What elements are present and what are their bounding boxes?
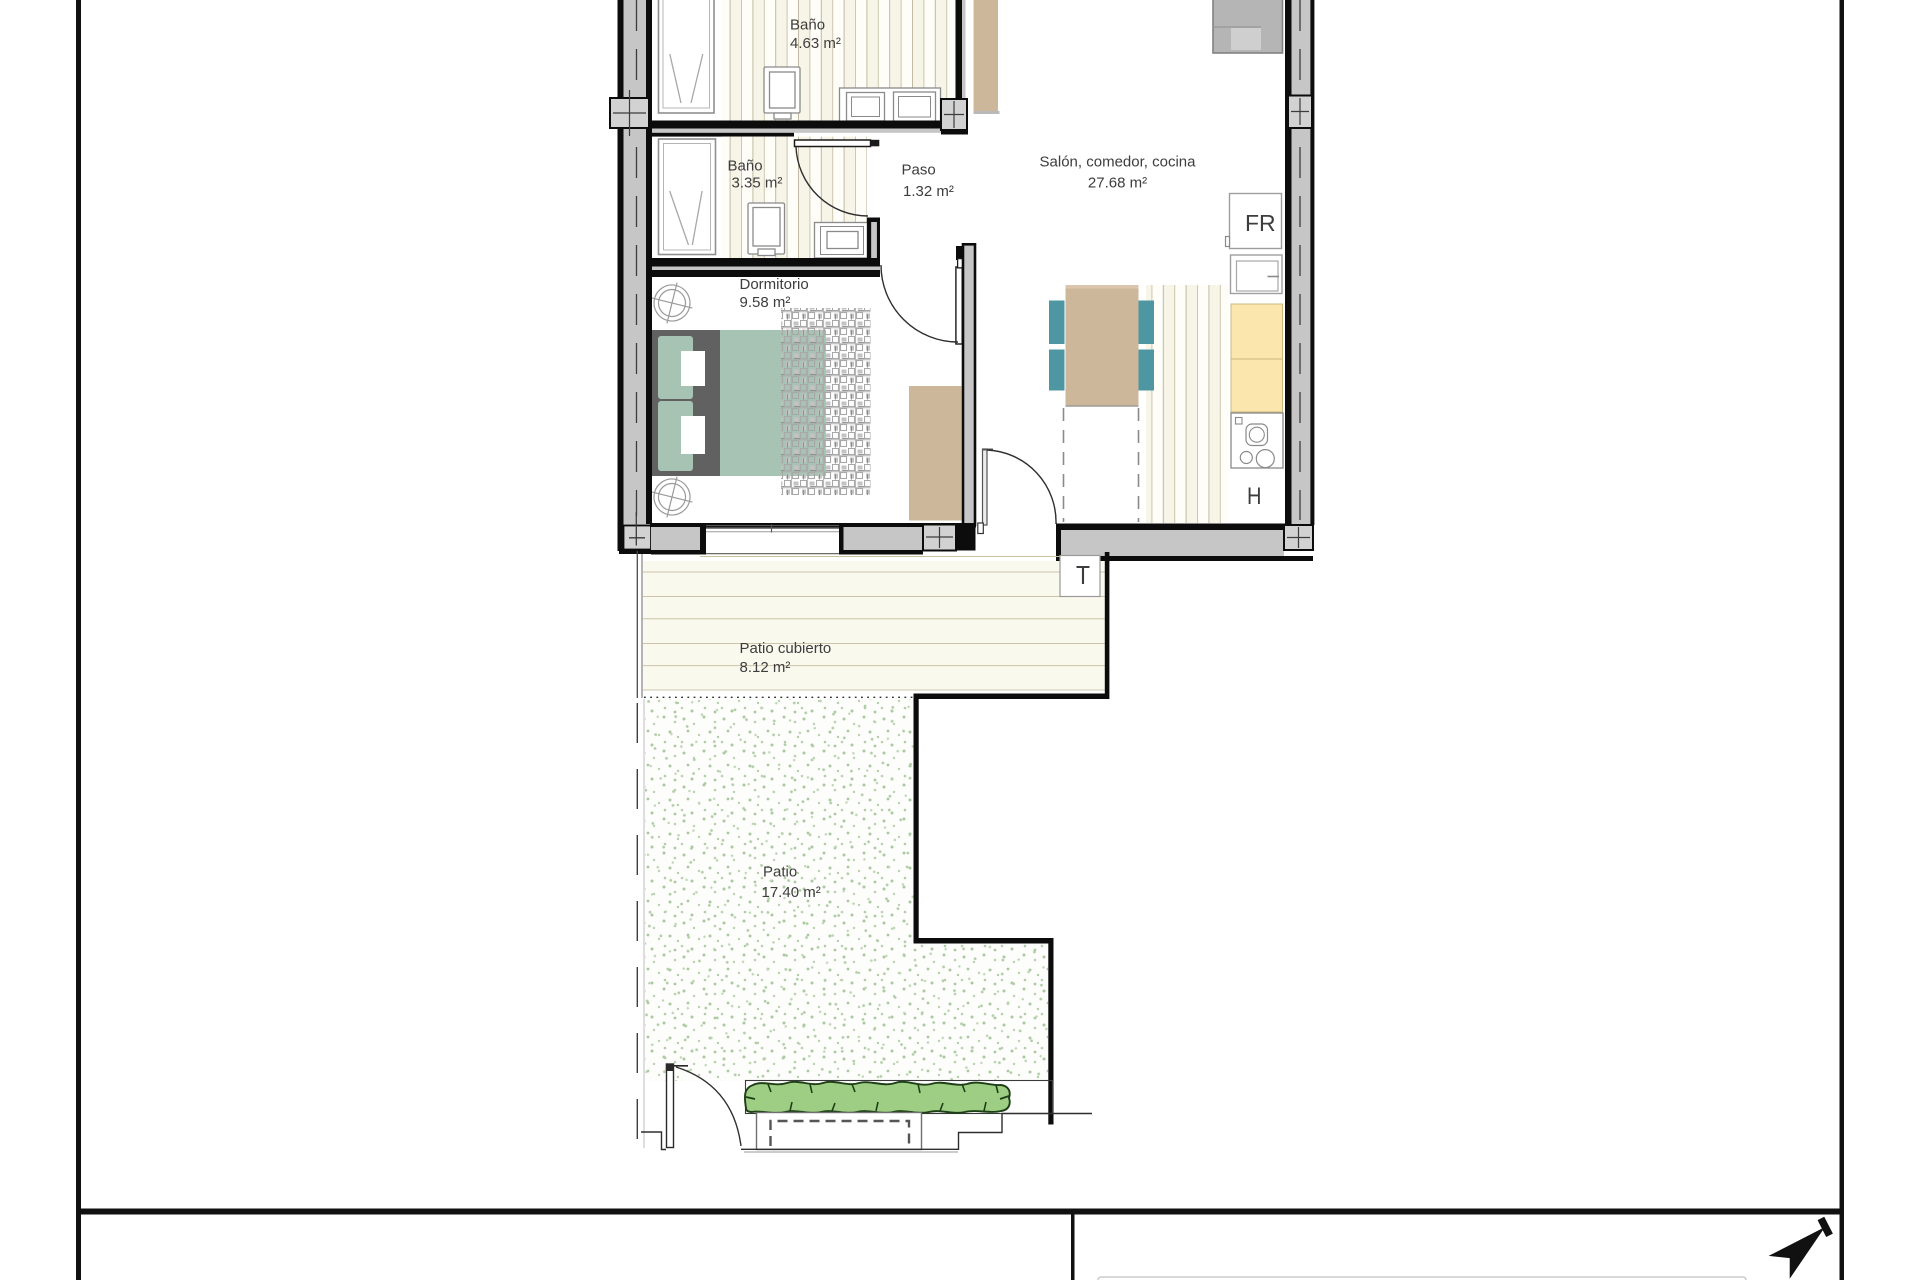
svg-text:8.12 m²: 8.12 m² — [740, 659, 791, 676]
svg-text:3.35 m²: 3.35 m² — [732, 175, 783, 192]
svg-text:FR: FR — [1245, 210, 1276, 236]
svg-text:H: H — [1247, 483, 1262, 510]
svg-text:Baño: Baño — [728, 158, 763, 175]
svg-text:Baño: Baño — [790, 17, 825, 34]
svg-text:Dormitorio: Dormitorio — [740, 276, 809, 293]
svg-text:Patio cubierto: Patio cubierto — [740, 640, 832, 657]
svg-text:Paso: Paso — [902, 162, 936, 179]
svg-text:17.40 m²: 17.40 m² — [762, 884, 821, 901]
svg-text:Salón, comedor, cocina: Salón, comedor, cocina — [1040, 154, 1197, 171]
svg-text:1.32 m²: 1.32 m² — [903, 183, 954, 200]
svg-text:27.68 m²: 27.68 m² — [1088, 175, 1147, 192]
svg-text:T: T — [1076, 560, 1090, 590]
svg-text:Patio: Patio — [763, 864, 797, 881]
svg-text:4.63 m²: 4.63 m² — [790, 35, 841, 52]
